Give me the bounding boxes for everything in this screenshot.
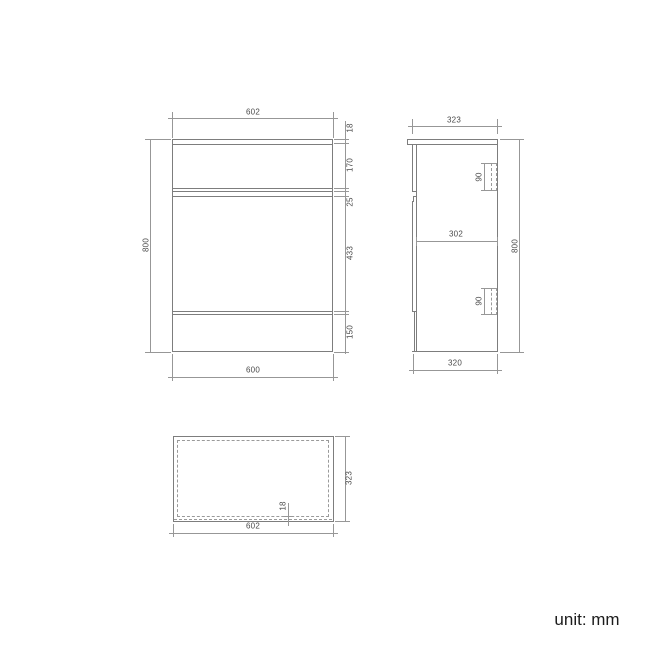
- dim-label-front-top-thickness: 18: [346, 123, 355, 132]
- dim-label-front-width-top: 602: [246, 108, 260, 117]
- top-depth-ext-bottom: [335, 521, 350, 522]
- side-depth-top-ext-left: [412, 119, 413, 134]
- top-depth-ext-top: [335, 436, 350, 437]
- front-plinth-top-line: [173, 314, 332, 315]
- side-height-ext-top: [500, 139, 524, 140]
- front-door-bottom-line: [173, 311, 332, 312]
- dim-label-front-width-bottom: 600: [246, 366, 260, 375]
- top-thickness-tick: [284, 516, 293, 517]
- front-chain-tick-4: [334, 191, 349, 192]
- top-thickness-dim-line: [288, 503, 289, 526]
- front-chain-tick-3: [334, 188, 349, 189]
- side-handle-lower-hidden: [491, 288, 497, 315]
- side-handle-lower-tick-top: [481, 288, 492, 289]
- front-chain-tick-8: [334, 352, 349, 353]
- side-handle-lower-tick-bottom: [481, 314, 492, 315]
- side-plinth-line: [414, 311, 415, 352]
- dim-label-side-height: 800: [511, 239, 520, 253]
- dim-label-top-width: 602: [246, 522, 260, 531]
- front-width-bottom-ext-left: [172, 354, 173, 381]
- front-width-top-ext-right: [333, 112, 334, 138]
- side-outline: [412, 139, 498, 352]
- dim-label-front-gap: 25: [346, 197, 355, 206]
- side-front-inner-line: [416, 144, 417, 352]
- side-internal-dim-line: [416, 241, 498, 242]
- front-height-ext-top: [145, 139, 171, 140]
- dim-label-side-depth-top: 323: [447, 116, 461, 125]
- front-width-top-dim-line: [168, 118, 338, 119]
- side-depth-bottom-dim-line: [409, 370, 502, 371]
- side-handle-lower-dim-line: [484, 288, 485, 315]
- front-drawer-edge-line: [173, 191, 332, 192]
- side-groove-top-tick: [412, 191, 417, 192]
- dim-label-front-plinth-height: 150: [346, 325, 355, 339]
- dim-label-front-door-height: 433: [346, 246, 355, 260]
- front-width-top-ext-left: [172, 112, 173, 138]
- top-width-ext-right: [333, 524, 334, 537]
- side-handle-upper-hidden: [491, 163, 497, 191]
- front-door-top-line: [173, 196, 332, 197]
- front-chain-tick-7: [334, 314, 349, 315]
- dim-label-top-depth: 323: [345, 471, 354, 485]
- side-depth-top-dim-line: [408, 126, 502, 127]
- side-internal-tick-right: [497, 237, 498, 246]
- top-hidden-inner-rect: [177, 440, 329, 517]
- front-chain-tick-2: [334, 143, 349, 144]
- front-chain-tick-1: [334, 139, 349, 140]
- unit-label: unit: mm: [554, 610, 619, 630]
- side-front-line-upper: [412, 144, 413, 191]
- dim-label-side-internal-depth: 302: [449, 230, 463, 239]
- technical-drawing-canvas: 602 600 800 18 170 25 433 150: [0, 0, 650, 650]
- side-handle-upper-tick-bottom: [481, 190, 492, 191]
- front-width-bottom-dim-line: [168, 377, 338, 378]
- front-width-bottom-ext-right: [333, 354, 334, 381]
- side-depth-bottom-ext-right: [497, 354, 498, 374]
- side-internal-tick-left: [416, 237, 417, 246]
- front-outline: [172, 139, 333, 352]
- side-depth-bottom-ext-left: [413, 354, 414, 374]
- front-chain-dim-line: [345, 121, 346, 354]
- dim-label-front-height: 800: [142, 238, 151, 252]
- front-height-ext-bottom: [145, 352, 171, 353]
- dim-label-side-handle-upper: 90: [475, 172, 484, 181]
- side-front-line-lower: [412, 201, 413, 311]
- front-top-panel-line: [173, 144, 332, 145]
- dim-label-front-drawer-height: 170: [346, 158, 355, 172]
- side-depth-top-ext-right: [497, 119, 498, 134]
- dim-label-side-handle-lower: 90: [475, 296, 484, 305]
- front-chain-tick-6: [334, 311, 349, 312]
- top-width-dim-line: [169, 533, 338, 534]
- side-handle-upper-tick-top: [481, 163, 492, 164]
- top-width-ext-left: [173, 524, 174, 537]
- top-hidden-front-line: [174, 519, 332, 520]
- side-top-panel: [407, 139, 498, 145]
- dim-label-top-panel-thickness: 18: [279, 501, 288, 510]
- front-drawer-bottom-line: [173, 188, 332, 189]
- dim-label-side-depth-bottom: 320: [448, 359, 462, 368]
- side-handle-upper-dim-line: [484, 163, 485, 191]
- side-groove-lip-v: [413, 196, 414, 202]
- side-height-ext-bottom: [500, 352, 524, 353]
